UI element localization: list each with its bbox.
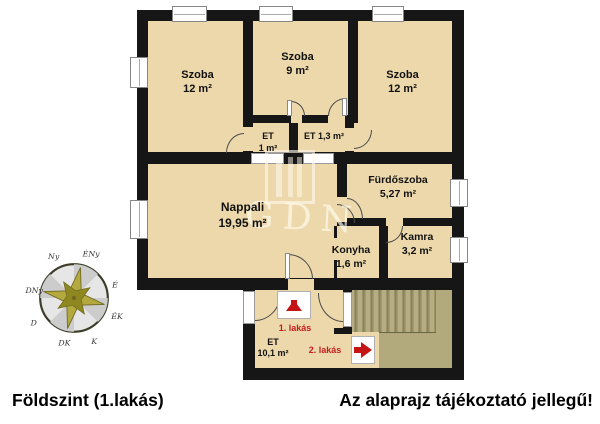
- wall: [243, 368, 464, 380]
- compass-rose: Ny ÉNy É ÉK K DK D DNy: [22, 246, 126, 350]
- apartment2-label: 2. lakás: [302, 345, 348, 355]
- room-label-et-13: ET 1,3 m²: [296, 130, 352, 142]
- apartment1-label: 1. lakás: [272, 323, 318, 333]
- door-gap: [328, 115, 345, 123]
- door-leaf: [285, 253, 290, 279]
- room-label-eloter: ET 10,1 m²: [247, 337, 299, 360]
- compass-label-dny: DNy: [24, 286, 43, 295]
- floor-caption: Földszint (1.lakás): [12, 390, 164, 411]
- disclaimer-caption: Az alaprajz tájékoztató jellegű!: [295, 390, 593, 411]
- room-label-furdoszoba: Fürdőszoba 5,27 m²: [347, 174, 449, 201]
- window: [130, 57, 148, 88]
- right-arrow-icon: [354, 342, 372, 358]
- window: [450, 179, 468, 207]
- room-label-et-small: ET 1 m²: [248, 130, 288, 154]
- window: [259, 6, 293, 22]
- window: [372, 6, 404, 22]
- door-gap: [288, 279, 314, 290]
- room-label-konyha: Konyha 1,6 m²: [315, 244, 387, 271]
- door-leaf: [287, 100, 292, 116]
- room-label-szoba-middle: Szoba 9 m²: [255, 50, 340, 79]
- door-gap: [291, 115, 302, 123]
- wall: [348, 10, 358, 123]
- compass-label-dk: DK: [57, 339, 71, 348]
- door-gap: [386, 218, 403, 226]
- window: [450, 237, 468, 263]
- compass-label-d: D: [30, 319, 38, 328]
- room-label-szoba-right: Szoba 12 m²: [355, 68, 450, 97]
- wall: [334, 328, 352, 334]
- compass-label-ny: Ny: [47, 252, 60, 261]
- window: [130, 200, 148, 239]
- apartment1-arrow-box: [277, 291, 311, 319]
- room-label-nappali: Nappali 19,95 m²: [185, 200, 300, 231]
- apartment2-arrow-box: [351, 336, 375, 364]
- up-arrow-icon: [286, 300, 302, 311]
- staircase-treads: [350, 290, 436, 333]
- compass-label-ek: ÉK: [110, 312, 124, 321]
- stair-door: [343, 292, 352, 327]
- compass-label-k: K: [90, 337, 98, 346]
- entry-door: [243, 291, 255, 324]
- window: [172, 6, 207, 22]
- compass-label-eny: ÉNy: [82, 249, 101, 258]
- compass-label-e: É: [111, 281, 118, 290]
- wall: [137, 10, 148, 290]
- floor-plan-canvas: GDN Szoba 12 m² Szoba 9 m² Szoba 12 m² E…: [0, 0, 600, 424]
- room-label-kamra: Kamra 3,2 m²: [382, 231, 452, 258]
- room-label-szoba-left: Szoba 12 m²: [150, 68, 245, 97]
- door-leaf: [342, 98, 347, 116]
